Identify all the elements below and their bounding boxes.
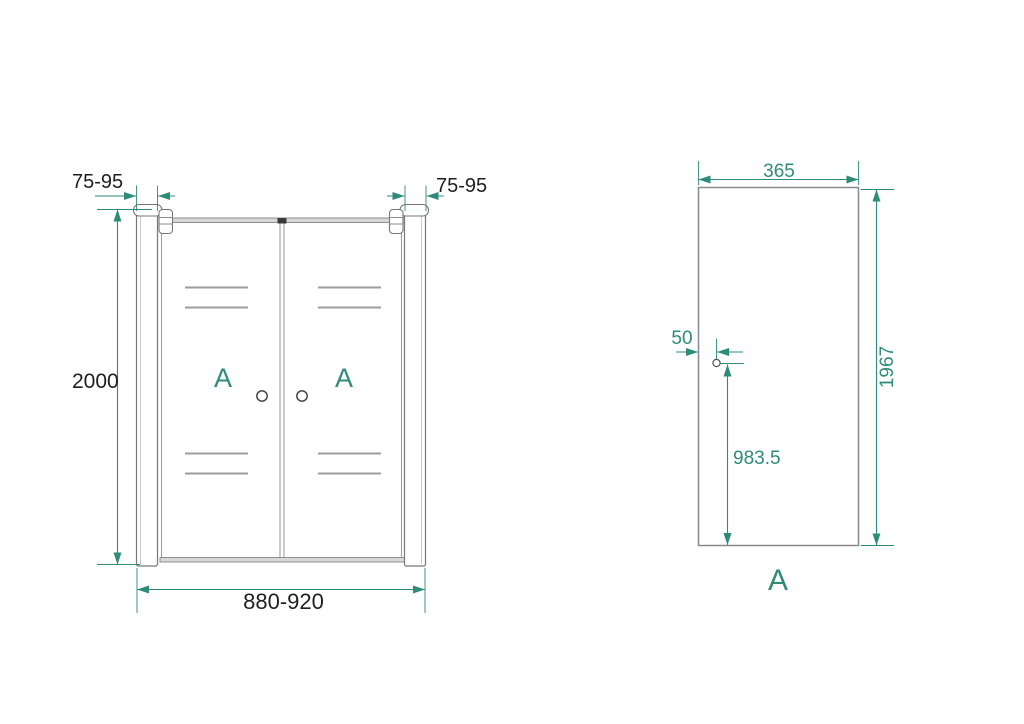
wall-profile-left — [137, 209, 158, 566]
hinge-barrel-left — [159, 210, 173, 234]
dim-label-height: 2000 — [72, 371, 114, 392]
bottom-rail — [160, 558, 406, 563]
hinge-barrel-right — [390, 210, 404, 234]
wall-profile-right — [405, 209, 426, 566]
panel-view-drawing — [676, 161, 894, 546]
glass-panel — [699, 188, 859, 546]
front-view-drawing — [95, 186, 444, 614]
technical-drawing-page: 75-95 75-95 2000 880-920 A A 365 1967 50… — [0, 0, 1024, 724]
door-label-left: A — [209, 365, 237, 392]
handle-hole — [713, 359, 720, 366]
left-door-knob — [257, 391, 267, 401]
right-door-knob — [297, 391, 307, 401]
dim-label-handle-inset: 50 — [667, 329, 697, 348]
door-label-right: A — [330, 365, 358, 392]
dim-label-profile-left: 75-95 — [72, 172, 123, 192]
drawing-linework — [0, 0, 1024, 724]
dim-label-profile-right: 75-95 — [436, 176, 487, 196]
dim-label-handle-height: 983.5 — [733, 449, 781, 468]
hinge-cap-right — [400, 205, 429, 217]
dim-label-panel-width: 365 — [752, 162, 806, 181]
center-top-block — [278, 218, 287, 224]
dim-label-width: 880-920 — [231, 591, 336, 613]
dim-label-panel-height: 1967 — [878, 335, 900, 399]
panel-label: A — [763, 566, 793, 596]
